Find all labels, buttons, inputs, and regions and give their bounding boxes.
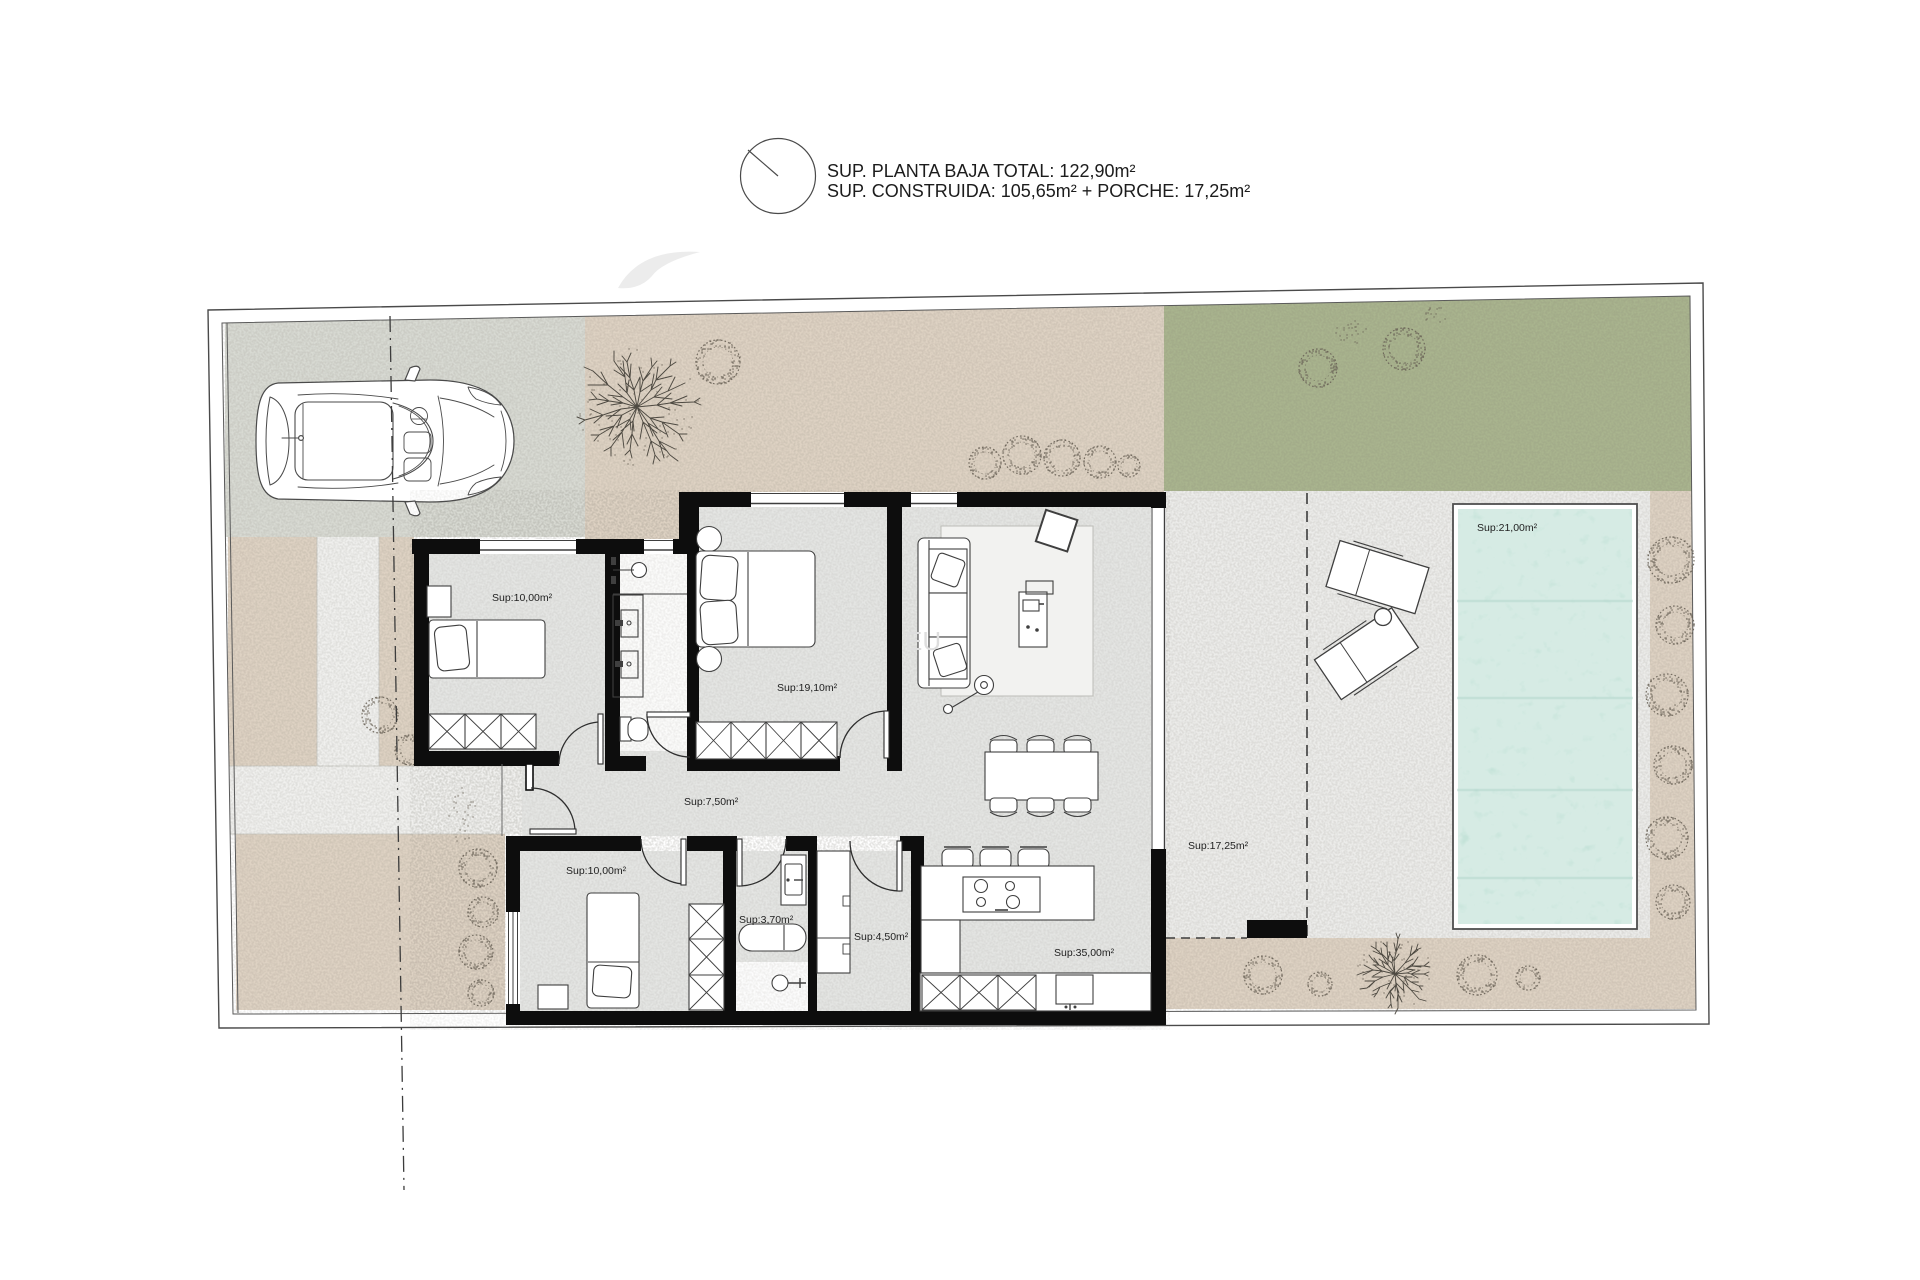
svg-text:Sup:4,50m²: Sup:4,50m² [854, 931, 909, 943]
svg-text:SUP. PLANTA BAJA TOTAL: 122,90: SUP. PLANTA BAJA TOTAL: 122,90m² [827, 161, 1135, 181]
svg-text:Sup:10,00m²: Sup:10,00m² [566, 865, 627, 877]
svg-text:Sup:21,00m²: Sup:21,00m² [1477, 522, 1538, 534]
svg-text:Sup:19,10m²: Sup:19,10m² [777, 682, 838, 694]
svg-text:Sup:35,00m²: Sup:35,00m² [1054, 947, 1115, 959]
svg-text:Sup:7,50m²: Sup:7,50m² [684, 796, 739, 808]
svg-text:Sup:17,25m²: Sup:17,25m² [1188, 840, 1249, 852]
svg-text:Sup:3,70m²: Sup:3,70m² [739, 914, 794, 926]
svg-text:SUP. CONSTRUIDA: 105,65m² + PO: SUP. CONSTRUIDA: 105,65m² + PORCHE: 17,2… [827, 181, 1250, 201]
svg-text:EU: EU [905, 626, 941, 656]
svg-text:Sup:10,00m²: Sup:10,00m² [492, 592, 553, 604]
